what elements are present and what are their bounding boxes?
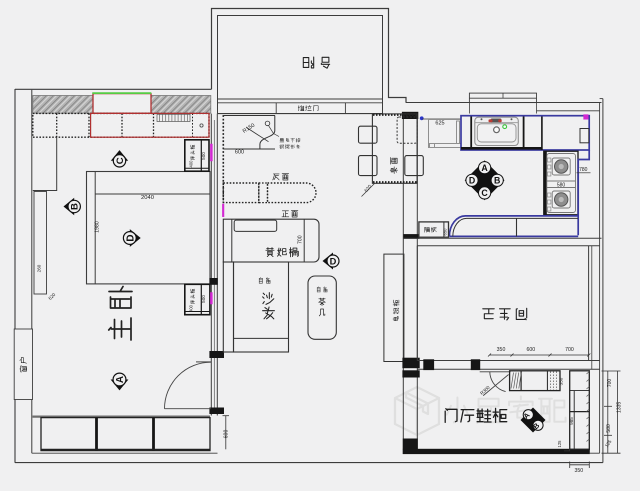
svg-text:600: 600: [526, 347, 535, 353]
svg-text:1335: 1335: [616, 402, 622, 413]
svg-text:650: 650: [443, 228, 448, 236]
svg-text:985: 985: [569, 417, 574, 425]
svg-text:C: C: [481, 188, 488, 198]
svg-text:500: 500: [201, 295, 206, 303]
svg-text:625: 625: [435, 120, 444, 126]
svg-text:350: 350: [574, 468, 583, 474]
svg-text:780: 780: [579, 167, 588, 173]
svg-text:B: B: [70, 203, 81, 210]
svg-text:C: C: [115, 157, 126, 164]
svg-text:700: 700: [607, 379, 613, 388]
svg-text:400: 400: [189, 304, 194, 312]
svg-text:350: 350: [559, 377, 564, 385]
svg-text:600: 600: [223, 430, 229, 439]
svg-text:D: D: [330, 256, 337, 266]
svg-text:125: 125: [557, 440, 562, 448]
svg-text:A: A: [115, 376, 126, 383]
svg-text:350: 350: [497, 347, 506, 353]
svg-text:260: 260: [36, 264, 41, 272]
svg-text:600: 600: [235, 150, 244, 156]
svg-text:A: A: [481, 163, 488, 173]
svg-text:1980: 1980: [95, 221, 101, 233]
svg-text:580: 580: [606, 424, 612, 433]
svg-text:580: 580: [557, 182, 566, 188]
svg-text:B: B: [494, 175, 500, 185]
svg-text:500: 500: [201, 152, 206, 160]
svg-text:D: D: [469, 175, 475, 185]
svg-text:2040: 2040: [141, 195, 154, 201]
svg-text:700: 700: [298, 235, 304, 244]
svg-text:700: 700: [565, 347, 574, 353]
svg-text:D: D: [125, 234, 136, 241]
svg-text:400: 400: [189, 160, 194, 168]
